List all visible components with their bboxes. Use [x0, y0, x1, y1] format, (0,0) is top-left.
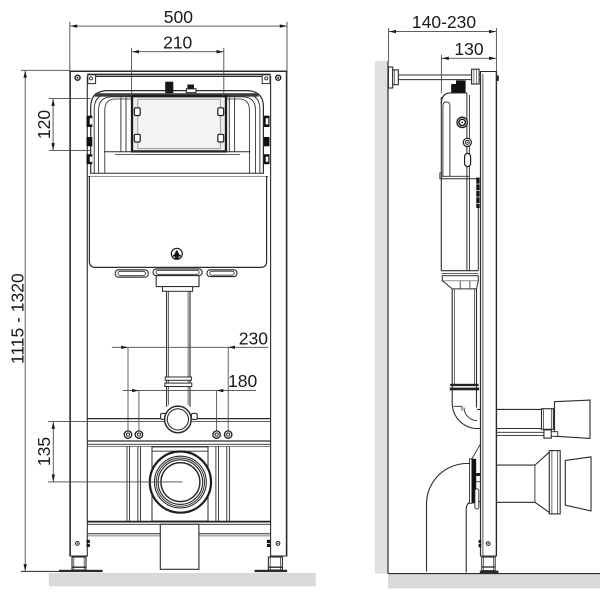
svg-text:120: 120: [34, 110, 54, 139]
svg-text:230: 230: [239, 328, 268, 348]
svg-text:1115 - 1320: 1115 - 1320: [7, 273, 27, 364]
svg-text:140-230: 140-230: [412, 12, 476, 32]
svg-text:135: 135: [34, 437, 54, 466]
svg-text:500: 500: [164, 7, 193, 27]
svg-text:180: 180: [228, 371, 257, 391]
svg-text:130: 130: [454, 39, 483, 59]
svg-text:210: 210: [163, 33, 192, 53]
